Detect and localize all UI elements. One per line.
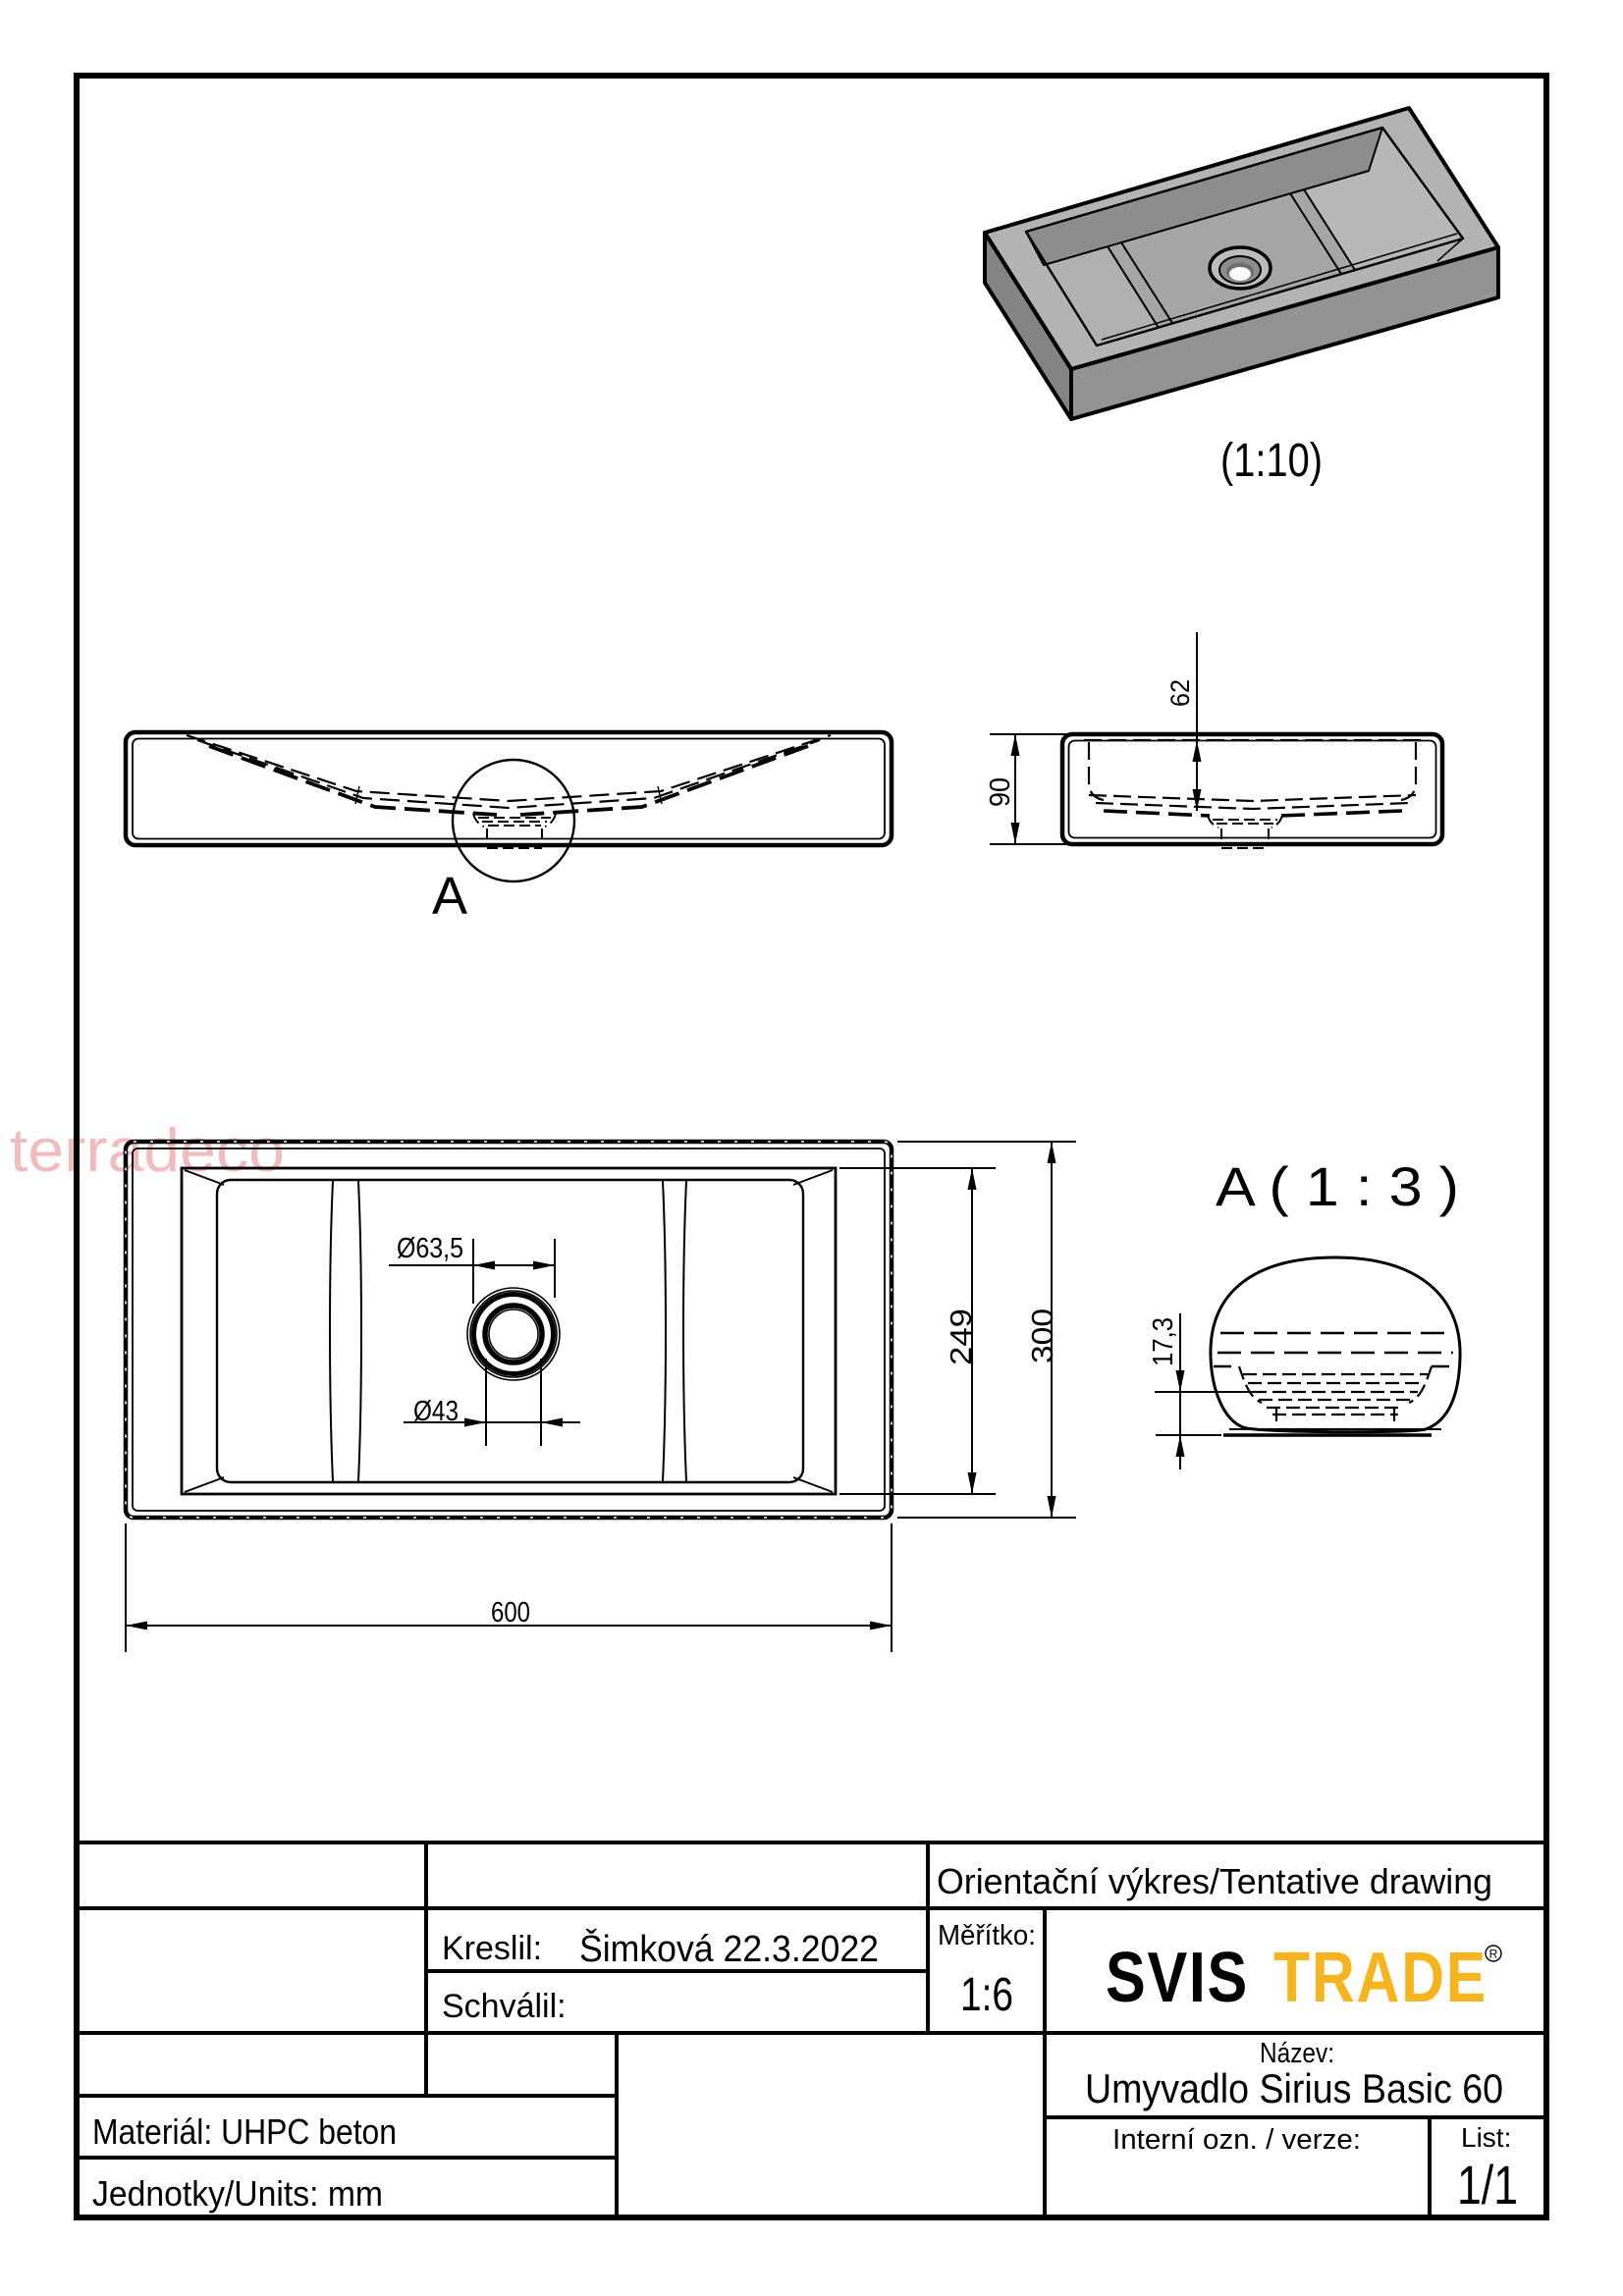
svg-text:Schválil:: Schválil: [442,1988,567,2025]
svg-text:Ø63,5: Ø63,5 [397,1233,463,1264]
svg-text:A ( 1 : 3 ): A ( 1 : 3 ) [1216,1155,1459,1217]
svg-text:Interní ozn. / verze:: Interní ozn. / verze: [1112,2124,1361,2156]
svg-text:249: 249 [944,1308,978,1365]
svg-text:TRADE: TRADE [1273,1939,1488,2017]
svg-text:Orientační výkres/Tentative dr: Orientační výkres/Tentative drawing [937,1861,1492,1901]
svg-text:terradeco: terradeco [10,1117,285,1185]
svg-text:Umyvadlo Sirius Basic 60: Umyvadlo Sirius Basic 60 [1085,2065,1503,2111]
svg-text:Měřítko:: Měřítko: [938,1920,1036,1951]
svg-text:R: R [1489,1948,1498,1961]
svg-text:A: A [432,867,467,926]
svg-text:SVIS: SVIS [1106,1939,1249,2017]
svg-text:62: 62 [1165,679,1195,707]
svg-text:300: 300 [1025,1308,1059,1363]
svg-text:1/1: 1/1 [1457,2154,1518,2216]
svg-text:Kreslil:: Kreslil: [442,1930,542,1967]
svg-text:90: 90 [985,777,1016,807]
svg-text:17,3: 17,3 [1148,1317,1179,1366]
svg-text:Jednotky/Units: mm: Jednotky/Units: mm [92,2173,383,2214]
svg-text:1:6: 1:6 [960,1969,1013,2021]
svg-text:(1:10): (1:10) [1220,435,1323,487]
svg-text:List:: List: [1461,2122,1511,2153]
svg-text:Šimková 22.3.2022: Šimková 22.3.2022 [579,1927,879,1970]
svg-text:600: 600 [491,1597,530,1629]
svg-text:Materiál: UHPC beton: Materiál: UHPC beton [92,2111,397,2152]
